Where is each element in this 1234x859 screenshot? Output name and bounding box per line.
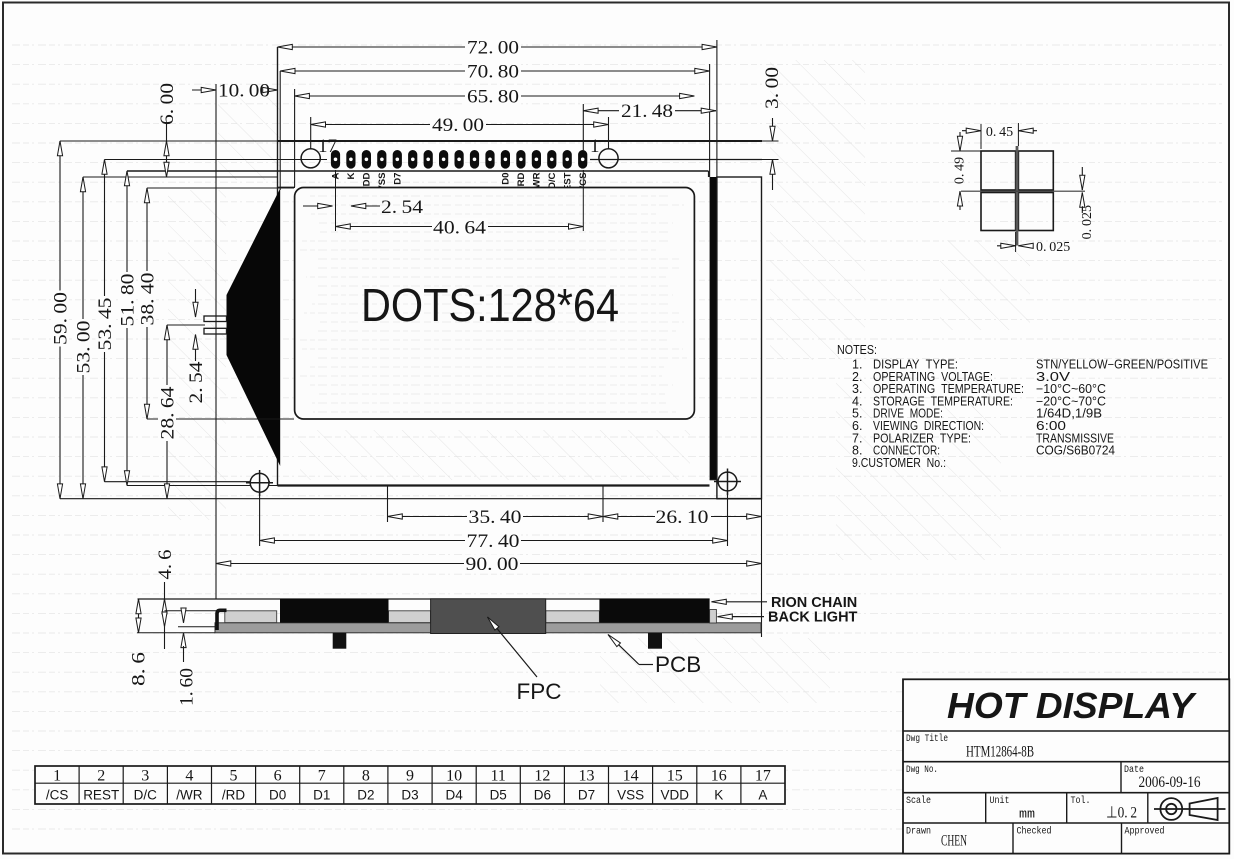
svg-text:PCB: PCB [655,652,701,677]
svg-text:K: K [714,788,723,803]
svg-text:21. 48: 21. 48 [621,101,673,122]
svg-text:D0: D0 [269,788,286,803]
svg-text:D/C: D/C [547,172,558,189]
svg-text:14: 14 [623,768,639,785]
svg-text:/CS: /CS [46,788,69,803]
svg-text:3. 00: 3. 00 [762,67,783,109]
svg-text:3: 3 [141,768,149,785]
svg-text:VSS: VSS [617,788,644,803]
svg-text:8: 8 [362,768,370,785]
svg-text:5: 5 [230,768,238,785]
svg-text:K: K [346,172,357,179]
svg-text:35. 40: 35. 40 [469,507,522,528]
svg-text:53. 45: 53. 45 [95,298,116,351]
svg-text:HTM12864-8B: HTM12864-8B [966,744,1034,761]
svg-text:⊥0. 2: ⊥0. 2 [1106,805,1137,822]
svg-text:VDD: VDD [660,788,689,803]
svg-text:10. 00: 10. 00 [218,81,270,102]
svg-text:17: 17 [755,768,771,785]
svg-text:1. 60: 1. 60 [177,668,198,706]
svg-text:53. 00: 53. 00 [74,321,95,374]
svg-text:D5: D5 [490,788,507,803]
svg-text:/RD: /RD [516,172,527,189]
svg-text:70. 80: 70. 80 [467,62,519,83]
svg-text:D4: D4 [445,788,463,803]
svg-text:Unit: Unit [990,795,1010,807]
svg-text:HOT DISPLAY: HOT DISPLAY [947,685,1197,726]
svg-text:0. 45: 0. 45 [986,125,1013,140]
svg-text:4. 6: 4. 6 [155,550,176,580]
svg-text:0. 025: 0. 025 [1036,240,1070,255]
svg-text:Tol.: Tol. [1071,795,1091,807]
svg-text:4: 4 [185,768,193,785]
svg-text:13: 13 [579,768,595,785]
svg-text:D/C: D/C [134,788,158,803]
svg-text:26. 10: 26. 10 [656,507,709,528]
svg-text:72. 00: 72. 00 [467,38,519,59]
svg-text:2. 54: 2. 54 [381,197,424,218]
svg-text:/WR: /WR [176,788,202,803]
svg-text:FPC: FPC [517,679,562,704]
svg-text:A: A [331,172,342,179]
svg-text:D7: D7 [393,173,404,185]
svg-text:28. 64: 28. 64 [158,386,179,440]
svg-text:7: 7 [318,768,326,785]
svg-text:59. 00: 59. 00 [51,292,72,345]
svg-text:2. 54: 2. 54 [186,361,207,404]
svg-text:RION CHAIN: RION CHAIN [771,595,857,611]
svg-text:90. 00: 90. 00 [466,554,519,575]
svg-text:D7: D7 [578,788,595,803]
svg-text:COG/S6B0724: COG/S6B0724 [1036,444,1115,458]
svg-text:77. 40: 77. 40 [467,531,520,552]
svg-text:NOTES:: NOTES: [837,343,877,357]
svg-text:D6: D6 [534,788,551,803]
svg-text:D2: D2 [357,788,374,803]
svg-text:Dwg No.: Dwg No. [906,764,938,776]
svg-text:0. 025: 0. 025 [1080,205,1095,239]
svg-text:2: 2 [97,768,105,785]
svg-text:/RD: /RD [222,788,246,803]
svg-text:D3: D3 [401,788,418,803]
svg-text:10: 10 [446,768,462,785]
svg-text:mm: mm [1019,807,1035,822]
svg-text:Checked: Checked [1017,826,1052,838]
svg-text:Scale: Scale [906,795,931,807]
svg-text:65. 80: 65. 80 [467,87,519,108]
svg-text:6: 6 [274,768,282,785]
svg-text:9.CUSTOMER No.:: 9.CUSTOMER No.: [852,456,946,470]
svg-text:BACK LIGHT: BACK LIGHT [768,610,858,626]
svg-text:CHEN: CHEN [941,833,967,850]
svg-text:0. 49: 0. 49 [953,157,968,184]
svg-text:D1: D1 [313,788,330,803]
svg-text:8. 6: 8. 6 [129,652,150,686]
svg-text:16: 16 [711,768,727,785]
svg-text:A: A [758,788,767,803]
svg-text:6. 00: 6. 00 [157,83,178,125]
svg-text:51. 80: 51. 80 [118,274,139,327]
svg-text:D0: D0 [501,173,512,185]
svg-text:Approved: Approved [1125,826,1165,838]
svg-text:12: 12 [534,768,550,785]
svg-text:11: 11 [490,768,505,785]
svg-text:Dwg Title: Dwg Title [906,733,948,745]
svg-text:1: 1 [53,768,61,785]
svg-text:49. 00: 49. 00 [432,115,484,136]
svg-text:40. 64: 40. 64 [433,218,487,239]
svg-text:38. 40: 38. 40 [138,273,159,326]
svg-text:15: 15 [667,768,683,785]
svg-text:Drawn: Drawn [906,826,931,838]
svg-text:9: 9 [406,768,414,785]
svg-text:1: 1 [590,136,600,157]
svg-text:DOTS:128*64: DOTS:128*64 [361,279,619,331]
svg-text:REST: REST [83,788,119,803]
svg-text:2006-09-16: 2006-09-16 [1139,774,1201,791]
